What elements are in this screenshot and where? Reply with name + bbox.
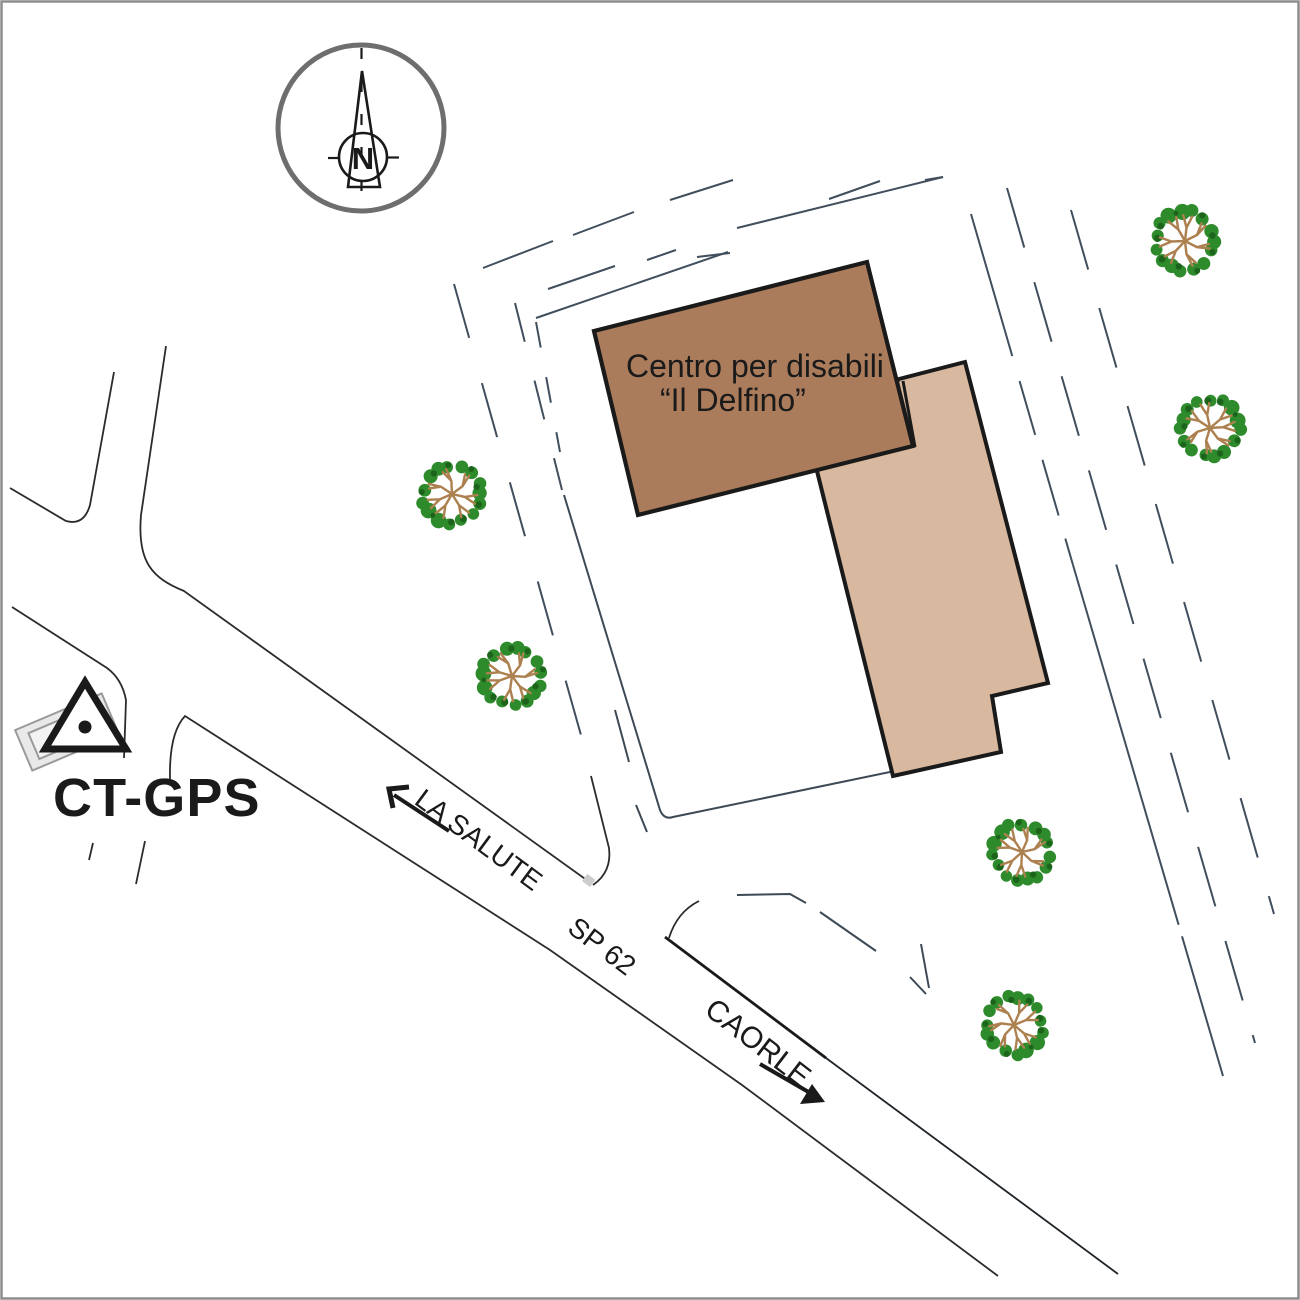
svg-text:N: N (352, 141, 374, 176)
svg-text:Centro per disabili: Centro per disabili (626, 348, 884, 384)
svg-text:“Il Delfino”: “Il Delfino” (660, 382, 806, 418)
svg-text:CT-GPS: CT-GPS (53, 768, 261, 828)
